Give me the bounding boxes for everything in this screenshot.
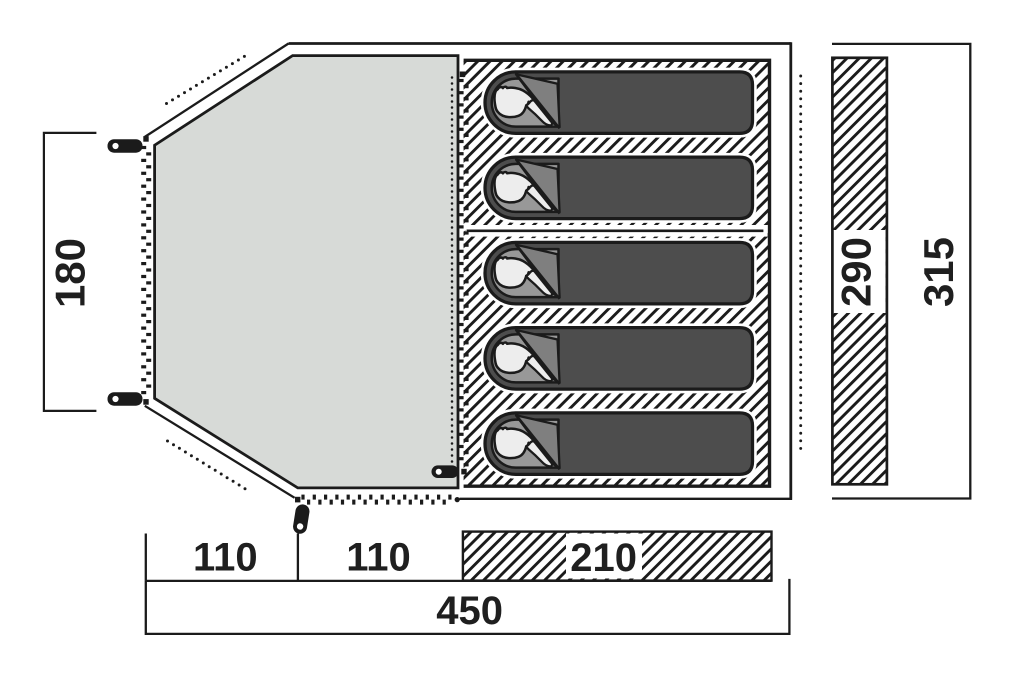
svg-text:110: 110: [346, 536, 411, 580]
svg-text:450: 450: [436, 589, 503, 633]
svg-text:315: 315: [915, 237, 962, 307]
svg-text:110: 110: [193, 536, 258, 580]
svg-text:290: 290: [833, 237, 880, 307]
svg-text:180: 180: [47, 238, 94, 308]
svg-text:210: 210: [570, 536, 637, 580]
